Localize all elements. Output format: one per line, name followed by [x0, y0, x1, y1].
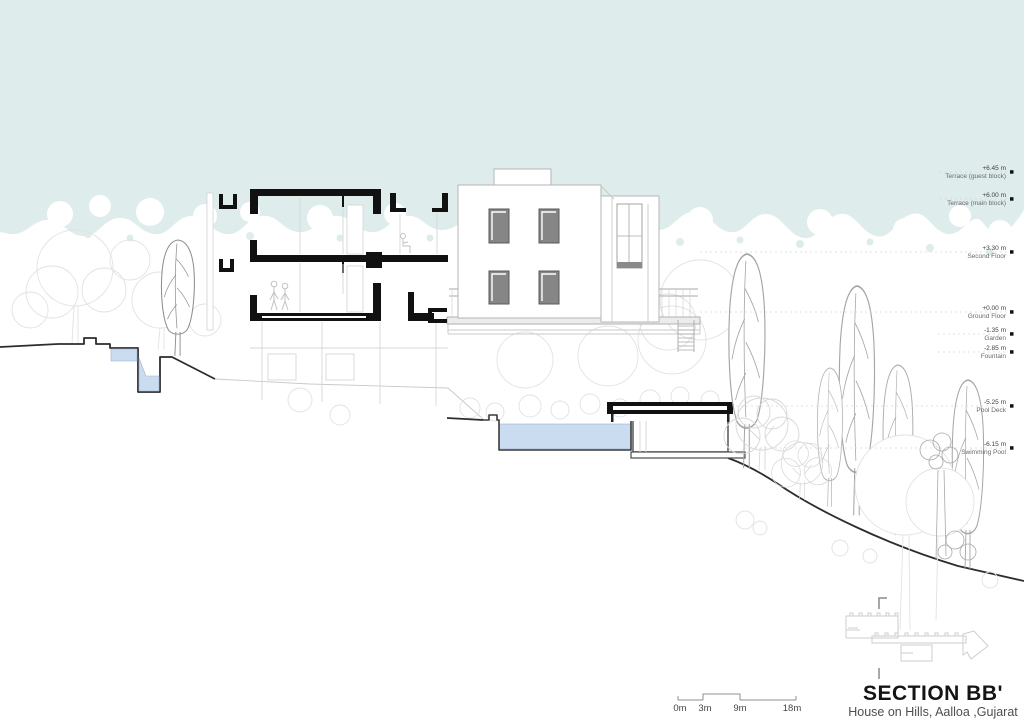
level-label: Ground Floor — [968, 313, 1007, 320]
level-value: -2.85 m — [984, 345, 1006, 352]
elevation-main-volume — [458, 185, 601, 318]
level-label: Pool Deck — [976, 407, 1006, 414]
drawing-title: SECTION BB' — [863, 682, 1003, 705]
level-value: +0.00 m — [982, 305, 1006, 312]
scale-label: 3m — [698, 703, 711, 714]
key-plan — [846, 598, 988, 679]
level-value: -1.35 m — [984, 327, 1006, 334]
retaining-wall-lines — [448, 324, 700, 334]
level-marker: -2.85 m Fountain — [938, 345, 1014, 360]
tree-columnar — [161, 240, 194, 356]
tree-columnar — [817, 368, 842, 507]
level-value: +6.00 m — [982, 192, 1006, 199]
level-label: Second Floor — [967, 253, 1006, 260]
scale-label: 9m — [733, 703, 746, 714]
fountain-water — [111, 349, 159, 391]
level-value: +3.30 m — [982, 245, 1006, 252]
scale-label: 0m — [673, 703, 686, 714]
level-label: Garden — [984, 335, 1006, 342]
pavilion-room — [633, 421, 728, 452]
drawing-subtitle: House on Hills, Aalloa ,Gujarat — [848, 705, 1018, 719]
level-value: -6.15 m — [984, 441, 1006, 448]
terrain-mid-faint — [215, 379, 483, 419]
section-drawing: +6.45 m Terrace (guest block) +6.00 m Te… — [0, 0, 1024, 723]
pavilion-floor — [631, 452, 745, 458]
level-label: Swimming Pool — [961, 449, 1006, 456]
pavilion-post — [611, 414, 614, 422]
pool-water — [499, 424, 631, 449]
section-cut-mark-top — [879, 598, 887, 609]
terrain-left — [0, 338, 215, 392]
level-marker: -1.35 m Garden — [938, 327, 1014, 342]
level-label: Terrace (guest block) — [945, 173, 1006, 180]
scale-bar: 0m 3m 9m 18m — [673, 694, 801, 714]
level-value: +6.45 m — [982, 165, 1006, 172]
tower-window-sill — [617, 262, 642, 268]
scale-label: 18m — [783, 703, 802, 714]
pavilion-post — [727, 414, 730, 422]
section-drawing-sheet: +6.45 m Terrace (guest block) +6.00 m Te… — [0, 0, 1024, 723]
level-label: Terrace (main block) — [947, 200, 1006, 207]
level-label: Fountain — [981, 353, 1007, 360]
roof-parapet — [494, 169, 551, 185]
swimming-pool — [447, 415, 631, 450]
level-value: -5.25 m — [984, 399, 1006, 406]
